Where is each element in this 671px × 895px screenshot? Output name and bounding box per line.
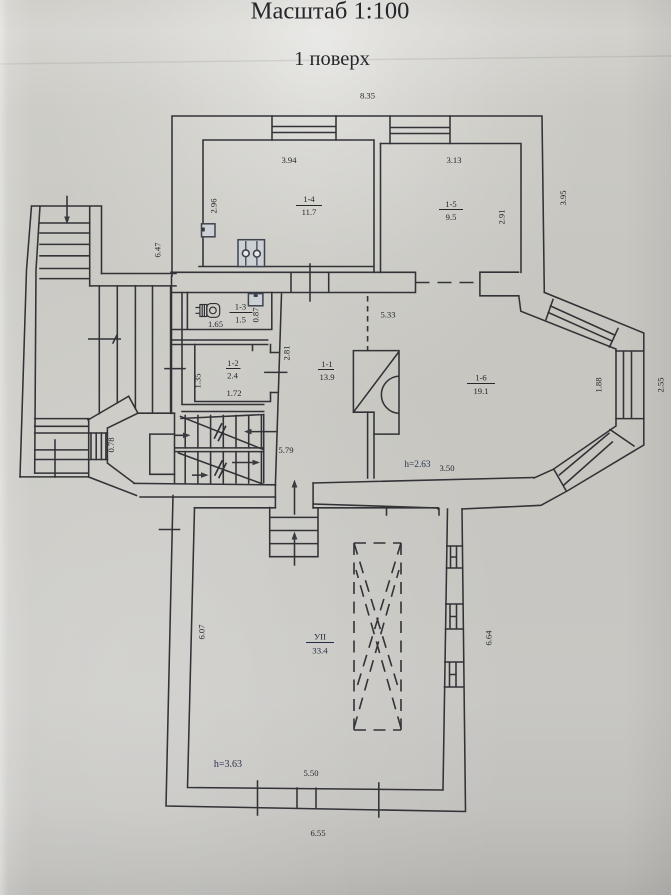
svg-text:2.91: 2.91 <box>497 209 507 224</box>
svg-text:6.47: 6.47 <box>153 242 163 258</box>
svg-text:11.7: 11.7 <box>302 207 317 217</box>
svg-text:5.50: 5.50 <box>303 768 318 778</box>
svg-text:1.35: 1.35 <box>193 373 203 388</box>
svg-text:0.87: 0.87 <box>251 307 261 323</box>
svg-text:3.50: 3.50 <box>439 463 454 473</box>
svg-text:6.64: 6.64 <box>484 630 494 646</box>
svg-text:h=2.63: h=2.63 <box>404 460 431 470</box>
svg-text:33.4: 33.4 <box>312 646 328 656</box>
svg-text:0.78: 0.78 <box>106 437 116 452</box>
svg-text:13.9: 13.9 <box>319 372 334 382</box>
svg-text:6.07: 6.07 <box>197 624 207 640</box>
svg-text:1 поверх: 1 поверх <box>294 48 370 70</box>
svg-text:3.94: 3.94 <box>281 155 297 165</box>
svg-text:УІІ: УІІ <box>314 632 326 642</box>
svg-text:1-3: 1-3 <box>235 302 246 312</box>
svg-text:2.55: 2.55 <box>656 377 666 392</box>
svg-text:1.65: 1.65 <box>208 319 223 329</box>
svg-text:1-4: 1-4 <box>303 194 315 204</box>
svg-text:1-1: 1-1 <box>321 359 332 369</box>
svg-text:3.95: 3.95 <box>558 190 568 205</box>
svg-text:19.1: 19.1 <box>473 386 488 396</box>
svg-text:2.81: 2.81 <box>282 345 292 360</box>
svg-text:9.5: 9.5 <box>446 212 457 222</box>
svg-text:1-5: 1-5 <box>445 199 456 209</box>
svg-text:1.72: 1.72 <box>226 388 241 398</box>
svg-text:1.5: 1.5 <box>235 315 246 325</box>
svg-text:1-2: 1-2 <box>227 358 238 368</box>
svg-text:1.88: 1.88 <box>594 377 604 392</box>
svg-text:Масштаб 1:100: Масштаб 1:100 <box>251 0 410 25</box>
svg-text:5.79: 5.79 <box>278 445 293 455</box>
svg-text:h=3.63: h=3.63 <box>214 759 242 770</box>
svg-text:2.96: 2.96 <box>209 198 219 214</box>
svg-text:5.33: 5.33 <box>380 310 395 320</box>
svg-text:6.55: 6.55 <box>310 828 325 838</box>
svg-text:1-6: 1-6 <box>475 373 487 383</box>
svg-text:3.13: 3.13 <box>446 155 461 165</box>
svg-text:8.35: 8.35 <box>360 91 375 101</box>
svg-text:2.4: 2.4 <box>227 371 238 381</box>
